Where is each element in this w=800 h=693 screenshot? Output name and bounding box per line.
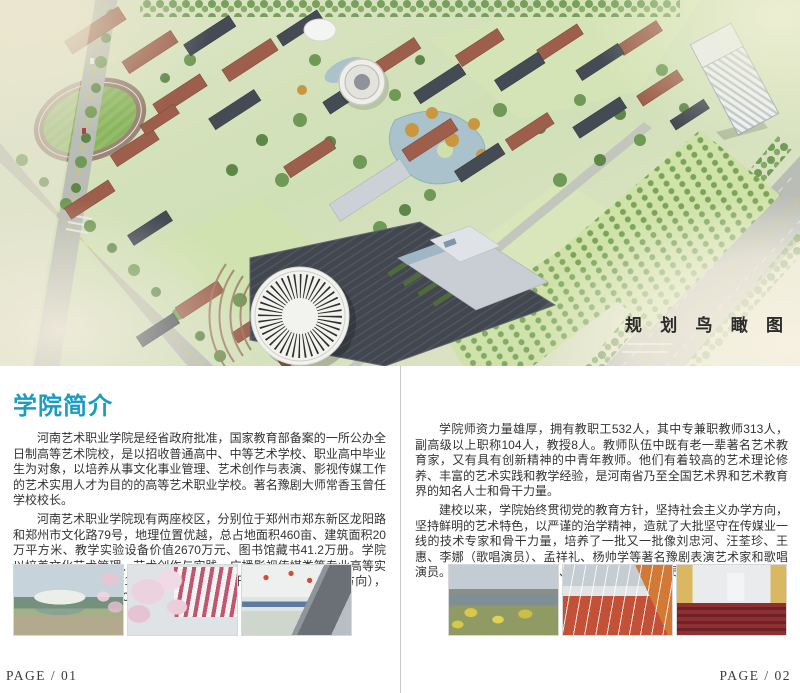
photo-hall-escalator (241, 564, 352, 636)
photo-row-left (13, 564, 352, 636)
photo-running-track (562, 564, 673, 636)
campus-aerial-rendering: 规 划 鸟 瞰 图 (0, 0, 800, 366)
photo-row-right (448, 564, 787, 636)
photo-auditorium (676, 564, 787, 636)
aerial-caption: 规 划 鸟 瞰 图 (625, 311, 790, 336)
page-number-right: PAGE / 02 (719, 668, 791, 684)
page-left: 学院简介 河南艺术职业学院是经省政府批准，国家教育部备案的一所公办全日制高等艺术… (0, 366, 400, 693)
photo-round-theater (13, 564, 124, 636)
page-title: 学院简介 (13, 386, 388, 421)
photo-cherry-blossom-building (127, 564, 238, 636)
brochure-spread: 规 划 鸟 瞰 图 学院简介 河南艺术职业学院是经省政府批准，国家教育部备案的一… (0, 0, 800, 693)
photo-campus-pond (448, 564, 559, 636)
page-number-left: PAGE / 01 (6, 668, 78, 684)
intro-paragraph-1: 河南艺术职业学院是经省政府批准，国家教育部备案的一所公办全日制高等艺术院校，是以… (13, 431, 386, 509)
content-spread: 学院简介 河南艺术职业学院是经省政府批准，国家教育部备案的一所公办全日制高等艺术… (0, 366, 800, 693)
page-right: 学院师资力量雄厚，拥有教职工532人，其中专兼职教师313人，副高级以上职称10… (400, 366, 800, 693)
faculty-paragraph: 学院师资力量雄厚，拥有教职工532人，其中专兼职教师313人，副高级以上职称10… (415, 422, 788, 500)
